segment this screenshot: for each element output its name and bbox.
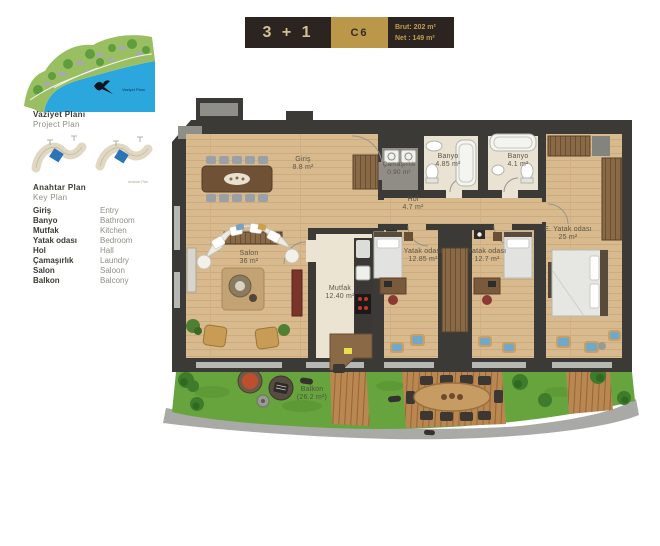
wardrobe <box>548 136 590 156</box>
pillow <box>590 256 599 280</box>
table-decor <box>441 393 463 400</box>
deck-strip <box>566 372 613 414</box>
wardrobe <box>442 248 468 332</box>
nightstand <box>493 232 502 241</box>
floorplan-page: 3 + 1 C6 Brut: 202 m² Net : 149 m² Vaziy… <box>0 0 660 546</box>
media-cabinet <box>292 270 302 316</box>
chimney-window <box>200 103 238 116</box>
double-bed <box>552 250 608 316</box>
balcony <box>163 368 639 439</box>
nightstand <box>404 232 413 241</box>
office-chair <box>482 295 492 305</box>
tv-unit <box>187 248 196 292</box>
pillow <box>590 284 599 308</box>
room-label-yatak-odasi-1: Yatak odası12.85 m² <box>404 248 443 263</box>
room-label-camasirlik: Çamaşırlık0.90 m² <box>382 161 415 176</box>
door-gap-bedroom-2 <box>494 222 512 232</box>
door-gap-bathroom-1 <box>446 186 462 198</box>
stove <box>355 294 371 314</box>
fridge <box>356 240 370 258</box>
pillow <box>377 239 399 248</box>
room-label-banyo-1: Banyo4.85 m² <box>435 153 460 168</box>
room-label-balkon: Balkon(26.2 m²) <box>297 386 327 401</box>
sink-icon <box>492 165 504 175</box>
desk <box>474 278 500 294</box>
monitor <box>384 281 392 287</box>
room-label-giris: Giriş8.8 m² <box>292 156 313 171</box>
door-gap-bedroom-1 <box>408 222 426 232</box>
rug-coffee-table <box>222 268 264 310</box>
dining-set <box>202 156 272 202</box>
room-label-salon: Salon36 m² <box>240 250 259 265</box>
room-label-banyo-2: Banyo4.1 m² <box>507 153 528 168</box>
room-label-hol: Hol4.7 m² <box>402 196 423 211</box>
side-table <box>598 342 606 350</box>
wardrobe <box>602 158 622 240</box>
sink-icon <box>426 141 442 151</box>
door-gap-kitchen <box>306 240 318 262</box>
notepad <box>344 348 352 354</box>
room-label-yatak-odasi-2: Yatak odası12.7 m² <box>468 248 507 263</box>
room-label-mutfak: Mutfak12.40 m² <box>325 285 354 300</box>
pillow <box>507 239 529 248</box>
deck-strip <box>330 372 370 426</box>
kitchen-sink <box>356 266 370 280</box>
entry-closet <box>353 155 378 189</box>
office-chair <box>388 295 398 305</box>
room-label-e-yatak-odasi: E. Yatak odası25 m² <box>544 226 592 241</box>
monitor <box>488 281 496 287</box>
floor-plan-drawing <box>0 0 660 546</box>
desk <box>380 278 406 294</box>
shaft-box <box>592 136 610 156</box>
desk-chair <box>333 364 345 373</box>
